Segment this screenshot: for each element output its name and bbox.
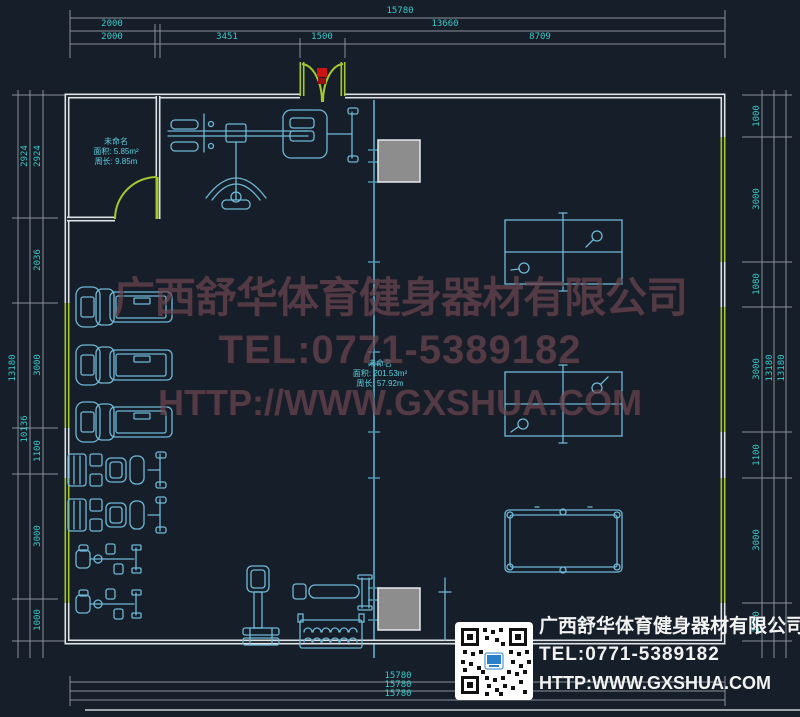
- qr-code: [455, 622, 533, 700]
- vertical-machine-icon: [243, 566, 279, 645]
- billiard-table-icon: [505, 507, 622, 573]
- door-sensor: [317, 68, 327, 84]
- company-tel: TEL:0771-5389182: [539, 641, 800, 669]
- treadmill-icon: [76, 402, 172, 442]
- strength-machine-icon: [68, 497, 166, 533]
- barbell-stand-icon: [439, 578, 451, 640]
- floorplan-drawing: [0, 0, 800, 717]
- multi-gym-machine-icon: [168, 108, 358, 209]
- small-room-door: [115, 177, 157, 219]
- column: [378, 140, 420, 182]
- column: [378, 588, 420, 630]
- centerline: [368, 100, 380, 658]
- exercise-bike-icon: [76, 589, 141, 619]
- ping-pong-table-icon: [505, 213, 622, 291]
- cad-floorplan-canvas[interactable]: 15780 2000 13660 2000 3451 1500 8709 157…: [0, 0, 800, 717]
- company-url: HTTP:WWW.GXSHUA.COM: [539, 669, 800, 697]
- columns: [378, 140, 420, 630]
- treadmill-icon: [76, 345, 172, 385]
- company-name: 广西舒华体育健身器材有限公司: [539, 613, 800, 641]
- exercise-bike-icon: [76, 544, 141, 574]
- strength-machine-icon: [68, 452, 166, 488]
- ping-pong-table-icon: [505, 365, 622, 443]
- company-info-block: 广西舒华体育健身器材有限公司 TEL:0771-5389182 HTTP:WWW…: [539, 613, 800, 697]
- bench-press-icon: [293, 575, 372, 610]
- treadmill-icon: [76, 287, 172, 327]
